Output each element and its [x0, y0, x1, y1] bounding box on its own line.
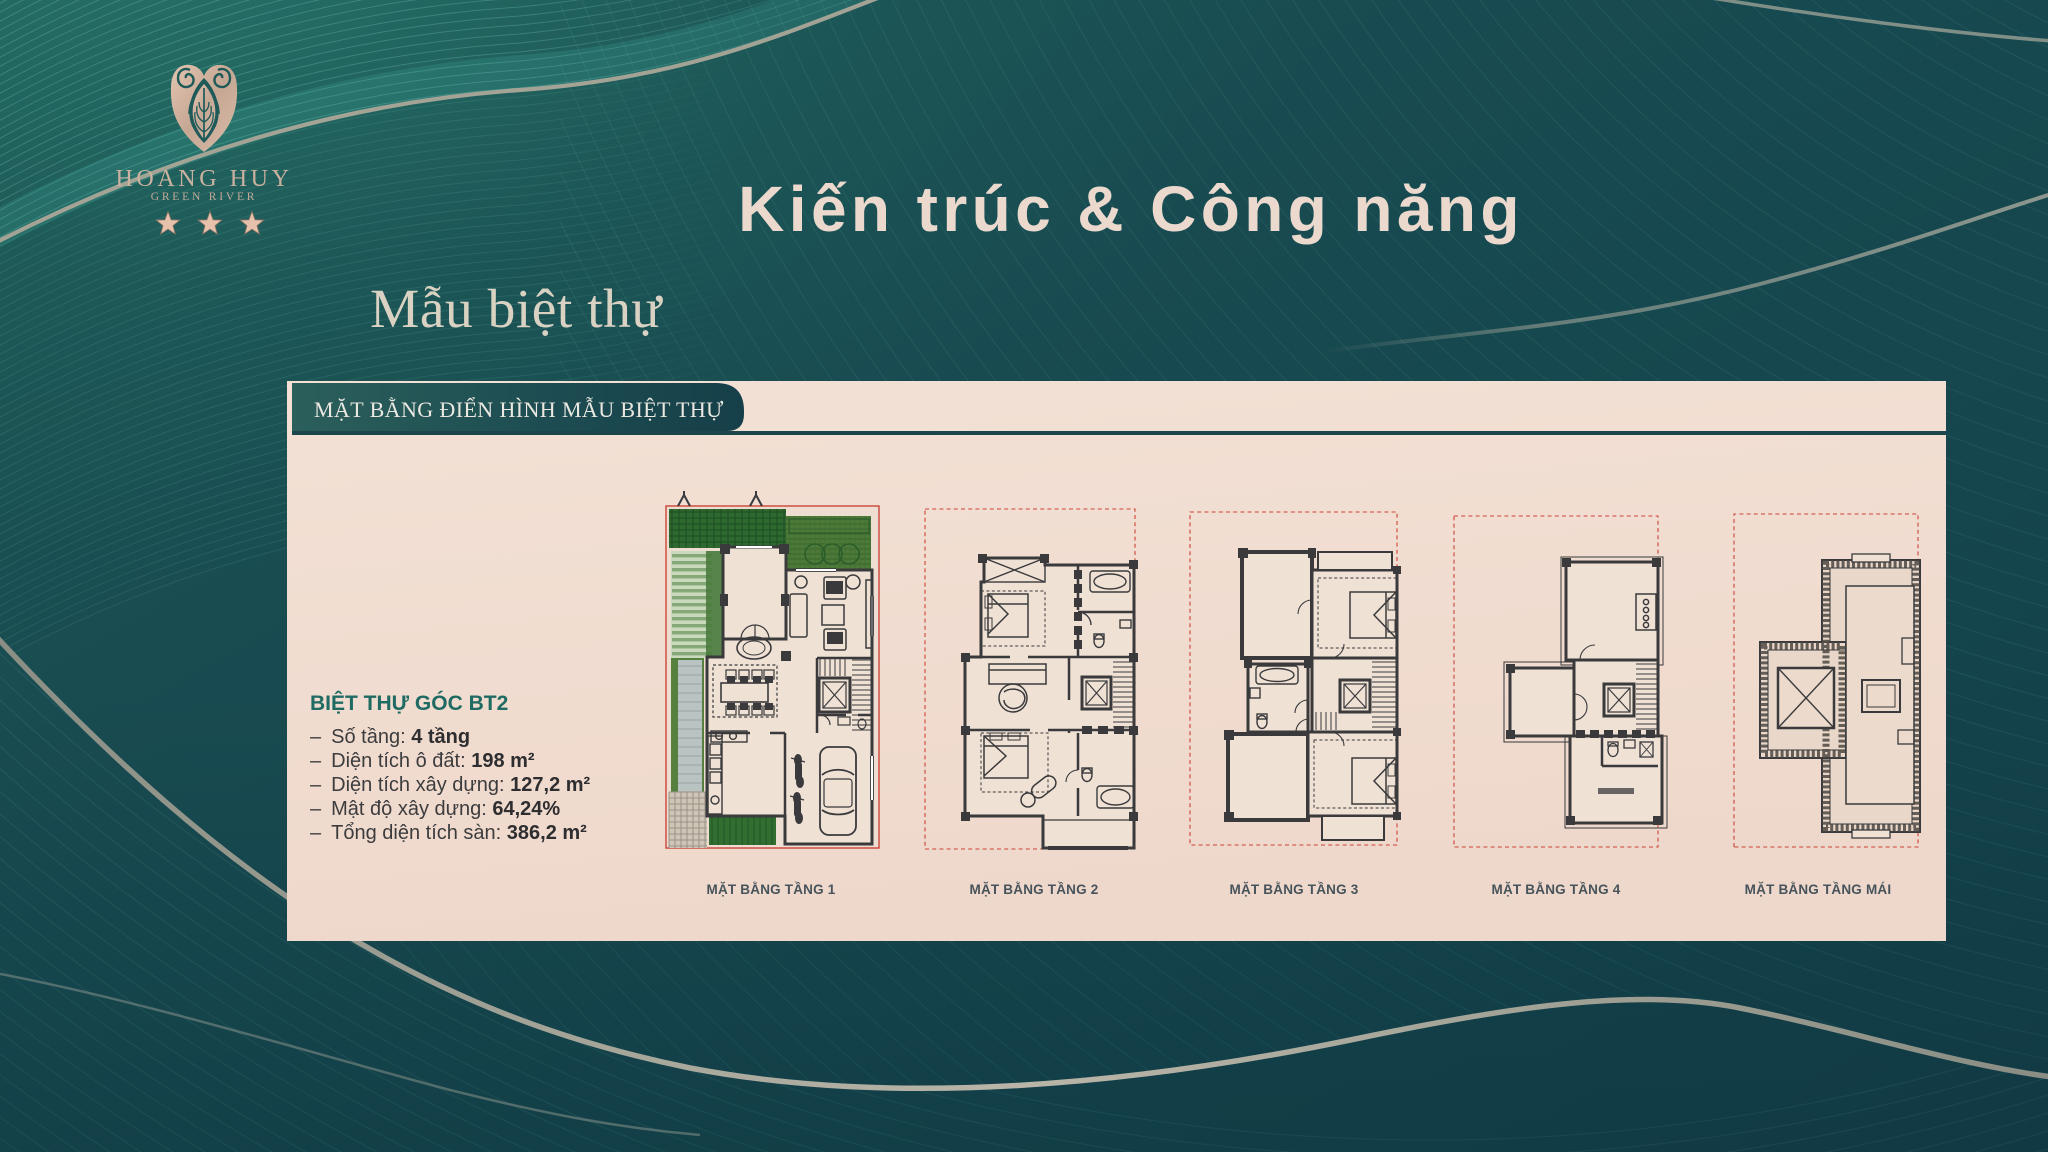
- svg-text:– Diện tích xây dựng: 127,2 m²: – Diện tích xây dựng: 127,2 m²: [310, 774, 591, 796]
- svg-text:– Diện tích ô đất: 198 m²: – Diện tích ô đất: 198 m²: [310, 750, 535, 772]
- svg-text:HOANG HUY: HOANG HUY: [115, 166, 292, 192]
- svg-text:BIỆT THỰ GÓC BT2: BIỆT THỰ GÓC BT2: [310, 691, 508, 715]
- svg-text:MẶT BẰNG TẦNG 2: MẶT BẰNG TẦNG 2: [970, 882, 1099, 897]
- svg-text:Kiến trúc & Công năng: Kiến trúc & Công năng: [738, 173, 1524, 245]
- svg-text:MẶT BẰNG TẦNG MÁI: MẶT BẰNG TẦNG MÁI: [1745, 882, 1892, 897]
- svg-text:GREEN RIVER: GREEN RIVER: [151, 191, 258, 203]
- svg-text:MẶT BẰNG TẦNG 4: MẶT BẰNG TẦNG 4: [1492, 882, 1621, 897]
- svg-text:MẶT BẰNG ĐIỂN HÌNH MẪU BIỆT TH: MẶT BẰNG ĐIỂN HÌNH MẪU BIỆT THỰ: [314, 397, 724, 422]
- svg-text:– Mật độ xây dựng: 64,24%: – Mật độ xây dựng: 64,24%: [310, 798, 560, 820]
- svg-text:MẶT BẰNG TẦNG 1: MẶT BẰNG TẦNG 1: [707, 882, 836, 897]
- svg-text:Mẫu biệt thự: Mẫu biệt thự: [370, 279, 663, 340]
- svg-text:– Tổng diện tích sàn: 386,2 m²: – Tổng diện tích sàn: 386,2 m²: [310, 822, 587, 844]
- svg-text:MẶT BẰNG TẦNG 3: MẶT BẰNG TẦNG 3: [1230, 882, 1359, 897]
- svg-text:– Số tầng: 4 tầng: – Số tầng: 4 tầng: [310, 726, 470, 748]
